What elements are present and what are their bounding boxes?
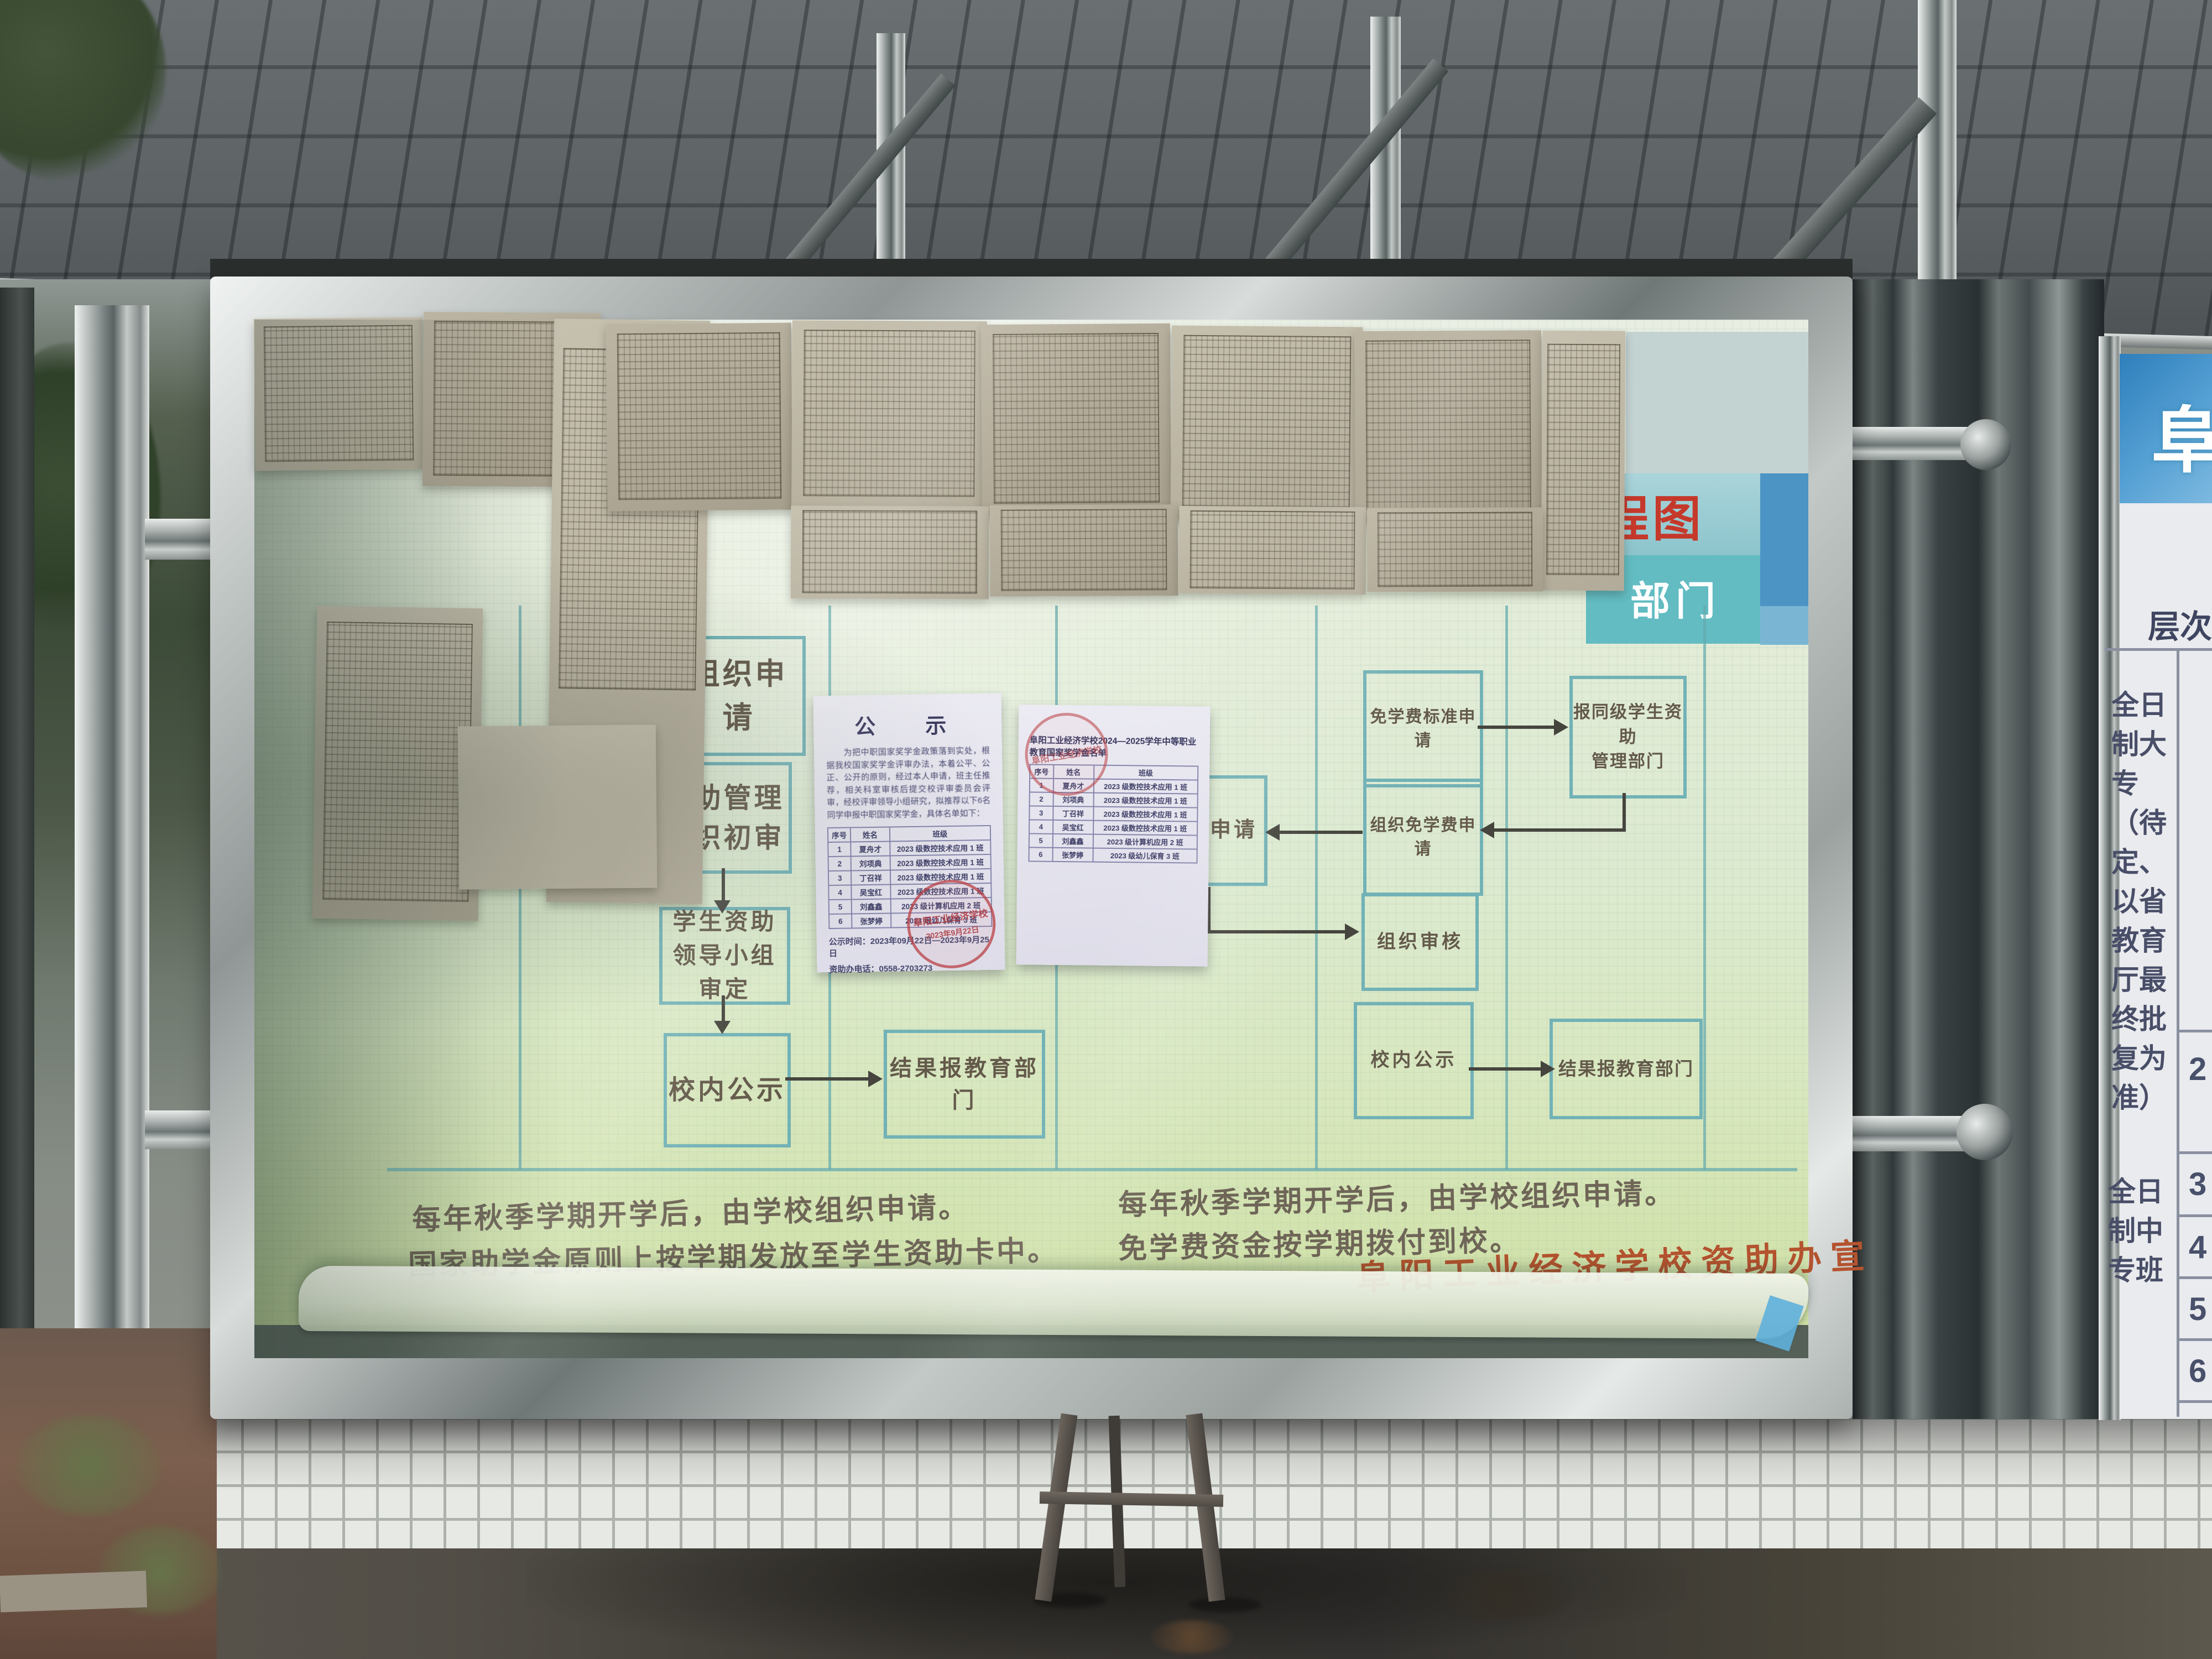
arrow-line-d-e bbox=[785, 1077, 868, 1081]
arrow-line-r2-elbow-v bbox=[1623, 793, 1626, 832]
taped-list-strip bbox=[791, 505, 989, 599]
cell: 刘项典 bbox=[851, 855, 890, 870]
cell: 吴宝红 bbox=[1053, 820, 1093, 834]
grid-line-v4 bbox=[1315, 606, 1318, 1170]
cell: 4 bbox=[1029, 820, 1053, 833]
cell: 3 bbox=[828, 870, 852, 885]
hinge-bar-upper bbox=[1853, 427, 1971, 460]
taped-list-sheet bbox=[606, 323, 793, 512]
side-row-line bbox=[2178, 1030, 2212, 1032]
photo-bulletin-board-scene: 程图 部门 组织申请 资助管理 组织初审 学生资助 领导小组审定 校内公示 结果… bbox=[0, 0, 2212, 1659]
list-table-texture bbox=[803, 330, 975, 497]
cell: 丁召祥 bbox=[851, 870, 890, 885]
side-sign-character: 阜 bbox=[2151, 383, 2212, 487]
cell: 2023 级数控技术应用 1 班 bbox=[1093, 821, 1198, 836]
far-left-pole bbox=[0, 288, 34, 1360]
arrow-head-c-d bbox=[714, 1021, 731, 1034]
cell: 2023 级数控技术应用 1 班 bbox=[890, 840, 991, 856]
hinge-knob-lower bbox=[1957, 1104, 2013, 1160]
flow-box-tuition-waiver-application: 免学费标准申请 bbox=[1363, 670, 1483, 787]
poster-column-label: 部门 bbox=[1630, 568, 1721, 627]
table-row: 5刘鑫鑫2023 级计算机应用 2 班 bbox=[1029, 833, 1197, 849]
notice-th-name: 姓名 bbox=[851, 827, 890, 842]
hinge-knob-upper bbox=[1960, 419, 2011, 470]
roster-th-class: 班级 bbox=[1094, 765, 1198, 780]
left-steel-pole bbox=[75, 305, 149, 1359]
taped-list-sheet bbox=[1354, 330, 1542, 523]
taped-list-sheet-mid-left bbox=[312, 606, 483, 921]
flow-box-organize-tuition-waiver: 组织免学费申请 bbox=[1363, 779, 1483, 896]
cell: 张梦婷 bbox=[1052, 848, 1093, 862]
taped-list-strip bbox=[1178, 506, 1366, 594]
cell: 2023 级数控技术应用 1 班 bbox=[1093, 793, 1198, 808]
arrow-line-r1-r2 bbox=[1478, 726, 1555, 729]
list-table-texture bbox=[992, 333, 1160, 504]
arrow-head-r4-r5 bbox=[1345, 924, 1359, 940]
cell: 2023 级幼儿保育 3 班 bbox=[1093, 848, 1197, 863]
cell: 2023 级数控技术应用 1 班 bbox=[1093, 779, 1198, 794]
table-row: 6张梦婷2023 级幼儿保育 3 班 bbox=[1029, 847, 1197, 863]
hinge-bar-lower bbox=[1853, 1116, 1971, 1151]
taped-list-sheet bbox=[981, 324, 1171, 515]
scholarship-roster-paper: 阜阳工业经济学校2024—2025学年中等职业教育国家奖学金名单 序号 姓名 班… bbox=[1016, 705, 1211, 967]
arrow-line-r3-r4 bbox=[1279, 831, 1363, 834]
taped-blank-sheet bbox=[458, 724, 658, 889]
flow-box-leading-group-approval: 学生资助 领导小组审定 bbox=[659, 907, 790, 1005]
flow-box-report-education-right: 结果报教育部门 bbox=[1550, 1019, 1703, 1119]
arrow-line-r6-r7 bbox=[1469, 1067, 1542, 1071]
cell: 1 bbox=[828, 842, 851, 857]
flow-box-report-same-level-aid-dept: 报同级学生资助 管理部门 bbox=[1569, 676, 1687, 799]
cell: 2 bbox=[1030, 792, 1053, 806]
flow-box-school-publicity-left: 校内公示 bbox=[664, 1033, 791, 1147]
side-row-line bbox=[2178, 1151, 2212, 1154]
cell: 2 bbox=[828, 856, 852, 871]
side-tier2-text: 全日制中专班 bbox=[2108, 1172, 2178, 1290]
arrow-head-r1-r2 bbox=[1554, 719, 1568, 735]
arrow-head-b-c bbox=[714, 900, 731, 914]
cell: 刘鑫鑫 bbox=[1052, 834, 1093, 848]
notice-title: 公 示 bbox=[826, 708, 990, 740]
side-tier1-text: 全日制大专（待定、以省教育厅最终批复为准） bbox=[2111, 686, 2178, 1118]
flow-box-organize-audit: 组织审核 bbox=[1361, 893, 1479, 991]
moss-patch-1 bbox=[17, 1416, 160, 1515]
taped-list-sheet bbox=[791, 320, 987, 508]
side-row-number: 4 bbox=[2189, 1229, 2206, 1266]
notice-table-header-row: 序号 姓名 班级 bbox=[828, 826, 990, 842]
notice-body: 为把中职国家奖学金政策落到实处，根据我校国家奖学金评审办法，本着公平、公正、公开… bbox=[826, 745, 991, 822]
taped-list-sheet bbox=[254, 317, 424, 471]
arrow-line-c-d bbox=[722, 995, 725, 1021]
cell: 张梦婷 bbox=[852, 913, 891, 928]
crumpled-poster-edge bbox=[299, 1266, 1809, 1339]
list-table-texture bbox=[1001, 509, 1167, 591]
grid-line-h1 bbox=[387, 1168, 1797, 1171]
frame-top-shadow bbox=[210, 259, 1853, 279]
table-row: 3丁召祥2023 级数控技术应用 1 班 bbox=[1029, 806, 1197, 821]
cell: 5 bbox=[829, 899, 852, 914]
left-rail-upper bbox=[145, 519, 214, 560]
side-row-number: 5 bbox=[2189, 1291, 2206, 1328]
table-row: 1夏舟才2023 级数控技术应用 1 班 bbox=[828, 840, 990, 857]
cell: 6 bbox=[829, 914, 852, 928]
cell: 5 bbox=[1029, 833, 1053, 847]
public-notice-paper: 公 示 为把中职国家奖学金政策落到实处，根据我校国家奖学金评审办法，本着公平、公… bbox=[813, 693, 1005, 973]
list-table-texture bbox=[1190, 510, 1355, 589]
stamp-school-name: 阜阳工业经济学校 bbox=[1030, 742, 1102, 767]
cell: 2023 级数控技术应用 1 班 bbox=[890, 854, 991, 870]
cell: 刘鑫鑫 bbox=[852, 899, 891, 914]
table-row: 2刘项典2023 级数控技术应用 1 班 bbox=[1030, 792, 1198, 807]
grid-line-v6 bbox=[1703, 606, 1706, 1170]
list-table-texture bbox=[1365, 340, 1531, 512]
cell: 6 bbox=[1029, 847, 1053, 861]
arrow-line-r4-elbow-h bbox=[1207, 930, 1345, 933]
taped-list-strip bbox=[990, 504, 1178, 597]
side-row-line bbox=[2178, 1400, 2212, 1403]
cell: 2023 级数控技术应用 1 班 bbox=[1093, 807, 1198, 822]
side-row-line bbox=[2178, 1338, 2212, 1341]
leaf-debris-2 bbox=[1150, 1620, 1233, 1653]
taped-list-sheet bbox=[1170, 326, 1363, 520]
cell: 3 bbox=[1029, 806, 1053, 820]
taped-list-strip bbox=[1367, 507, 1543, 592]
list-table-texture bbox=[617, 332, 781, 500]
table-row: 4吴宝红2023 级数控技术应用 1 班 bbox=[1029, 820, 1197, 835]
list-table-texture bbox=[1378, 512, 1532, 587]
leaf-debris-1 bbox=[1438, 1571, 1571, 1620]
poster-header-haze bbox=[1626, 332, 1808, 477]
flow-box-report-education-left: 结果报教育部门 bbox=[884, 1030, 1045, 1139]
list-table-texture bbox=[1546, 343, 1620, 575]
arrow-line-b-c bbox=[722, 868, 725, 900]
table-row: 2刘项典2023 级数控技术应用 1 班 bbox=[828, 854, 991, 871]
list-table-texture bbox=[1182, 335, 1351, 508]
side-table-header-line bbox=[2105, 648, 2212, 651]
arrow-head-d-e bbox=[868, 1071, 883, 1087]
arrow-head-r2-r3 bbox=[1480, 822, 1494, 838]
cell: 吴宝红 bbox=[851, 884, 890, 899]
flow-box-school-publicity-right: 校内公示 bbox=[1354, 1002, 1474, 1119]
list-table-texture bbox=[802, 510, 977, 594]
side-row-line bbox=[2178, 1214, 2212, 1217]
arrow-line-r2-elbow-h bbox=[1494, 828, 1626, 832]
arrow-head-r6-r7 bbox=[1541, 1061, 1555, 1077]
list-table-texture bbox=[264, 325, 414, 462]
side-header-tier: 层次 bbox=[2148, 601, 2212, 647]
poster-header-blue-block bbox=[1760, 473, 1808, 606]
curb-stone bbox=[0, 1571, 147, 1612]
grid-line-v5 bbox=[1505, 606, 1508, 1170]
taped-list-sheet-narrow bbox=[1541, 331, 1625, 591]
notice-th-index: 序号 bbox=[828, 827, 851, 842]
side-row-number: 6 bbox=[2189, 1353, 2206, 1390]
side-row-number: 2 bbox=[2189, 1051, 2206, 1088]
cell: 4 bbox=[828, 885, 852, 900]
notice-th-class: 班级 bbox=[890, 826, 991, 842]
side-row-number: 3 bbox=[2189, 1166, 2206, 1203]
side-row-line bbox=[2178, 1276, 2212, 1279]
arrow-head-r3-r4 bbox=[1265, 824, 1280, 841]
cell: 丁召祥 bbox=[1053, 806, 1093, 821]
left-rail-lower bbox=[145, 1110, 214, 1149]
poster-header-blue-block-2 bbox=[1760, 606, 1808, 645]
cell: 夏舟才 bbox=[851, 841, 890, 856]
cell: 2023 级计算机应用 2 班 bbox=[1093, 834, 1197, 849]
list-table-texture bbox=[322, 622, 473, 902]
